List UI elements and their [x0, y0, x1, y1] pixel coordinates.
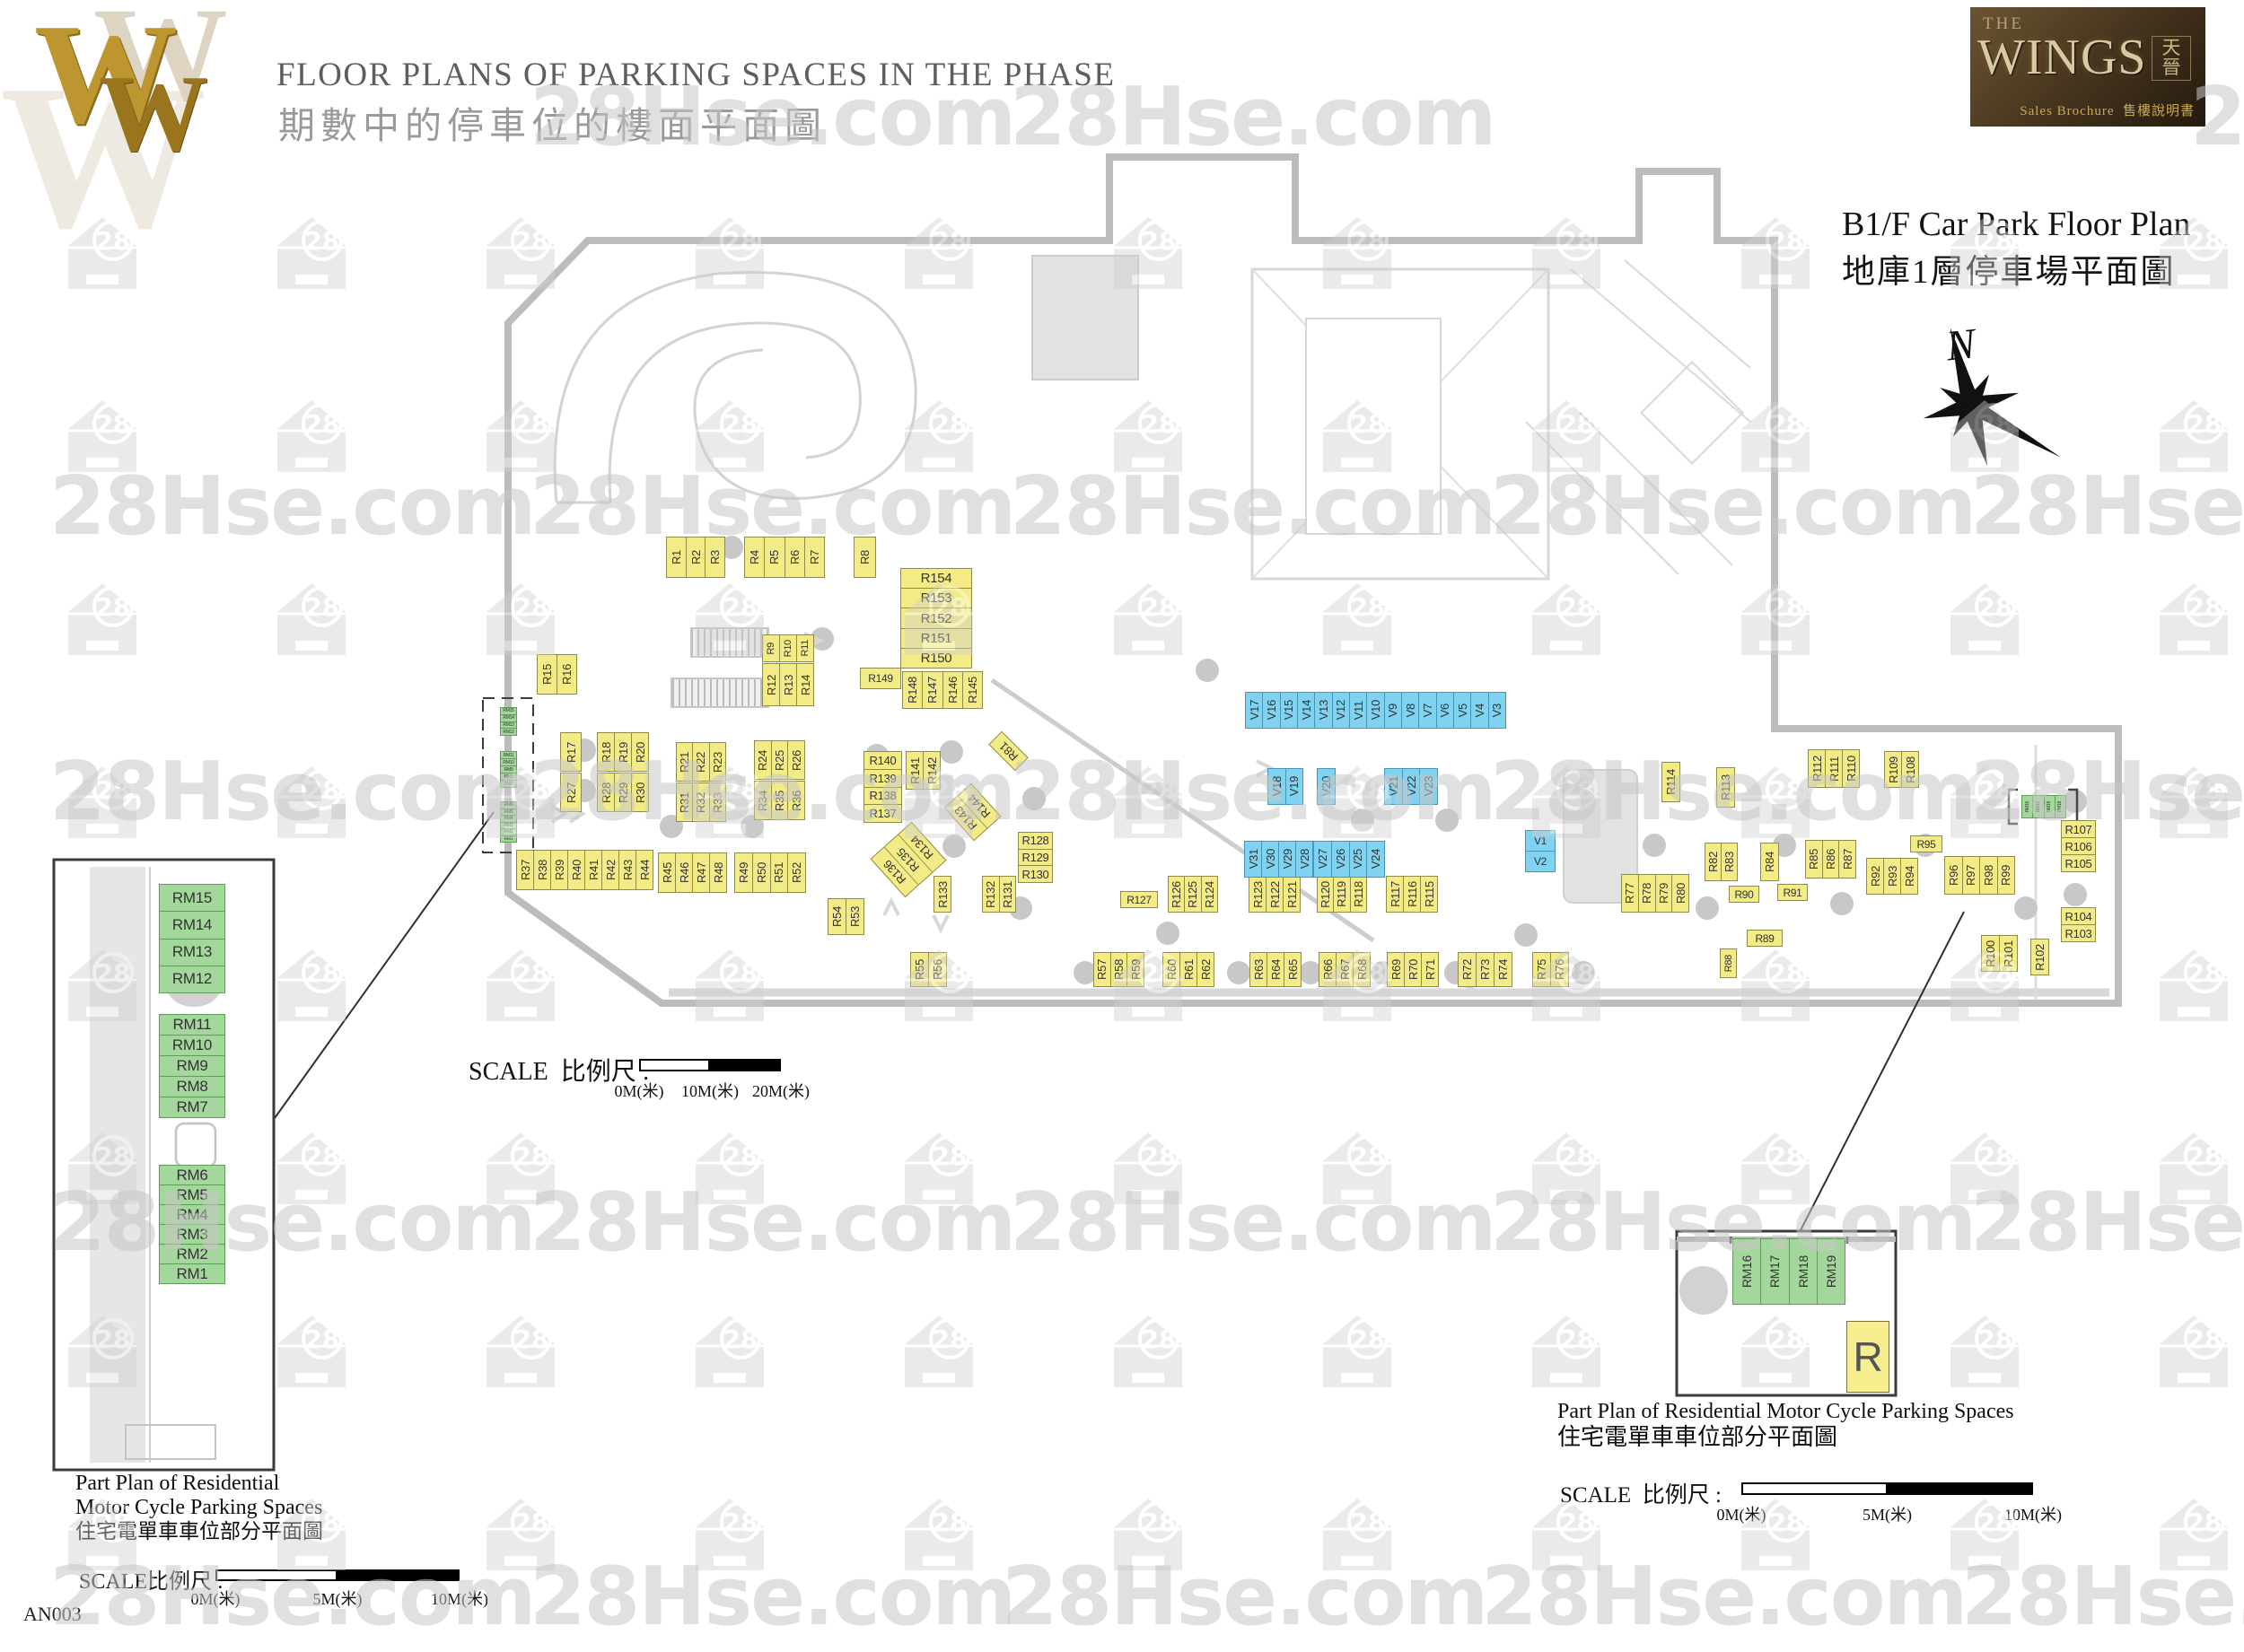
stall-label: R49	[737, 862, 750, 883]
parking-stall-group: R109R108	[1884, 751, 1919, 788]
parking-stall-RM6: RM6	[159, 1165, 225, 1185]
parking-stall-R106: R106	[2061, 838, 2096, 855]
parking-stall-group: R92R93R94	[1866, 858, 1918, 895]
scale-left-bar	[215, 1569, 460, 1581]
stall-label: RM1	[177, 1265, 208, 1283]
stall-label: V4	[1473, 704, 1486, 717]
parking-stall-RM11: RM11	[159, 1014, 225, 1036]
parking-stall-group: R88	[1720, 948, 1737, 978]
parking-stall-RM9: RM9	[500, 766, 517, 774]
stall-label: R59	[1129, 959, 1143, 980]
parking-stall-R131: R131	[1000, 876, 1017, 913]
stall-label: RM13	[503, 722, 513, 728]
parking-stall-R74: R74	[1495, 952, 1512, 987]
stall-label: R90	[1734, 888, 1753, 901]
stall-label: R12	[765, 675, 778, 695]
stall-label: R16	[560, 664, 574, 685]
parking-stall-R153: R153	[900, 589, 972, 608]
parking-stall-group: RM16RM17RM18RM19	[1732, 1238, 1845, 1305]
stall-label: R119	[1335, 881, 1348, 907]
stall-label: R132	[984, 881, 997, 908]
stall-label: R58	[1112, 959, 1126, 980]
parking-stall-R130: R130	[1018, 866, 1053, 883]
stall-label: RM12	[172, 970, 212, 988]
parking-stall-R14: R14	[797, 663, 814, 706]
stall-label: R18	[600, 742, 613, 763]
parking-stall-group: RM6RM5RM4RM3RM2RM1	[500, 801, 517, 843]
parking-stall-R43: R43	[619, 850, 636, 890]
parking-stall-R3: R3	[706, 537, 725, 578]
stall-label: R6	[788, 550, 802, 564]
stall-label: R70	[1407, 959, 1420, 980]
stall-label: R91	[1783, 887, 1801, 899]
stall-label: V23	[1422, 776, 1435, 796]
parking-stall-R149: R149	[860, 668, 901, 689]
parking-stall-R104: R104	[2061, 907, 2096, 925]
scale-left-ticks: 0M(米)5M(米)10M(米)	[215, 1586, 460, 1606]
stall-label: R40	[570, 860, 583, 880]
parking-stall-RM15: RM15	[500, 707, 517, 715]
stall-label: V3	[1490, 704, 1503, 717]
stall-label: V22	[1405, 776, 1418, 796]
stall-label: R20	[634, 742, 647, 763]
parking-stall-group: R49R50R51R52	[734, 852, 806, 893]
parking-stall-RM15: RM15	[159, 884, 225, 912]
parking-stall-RM17: RM17	[1761, 1238, 1789, 1305]
scale-tick: 10M(米)	[681, 1079, 739, 1102]
parking-stall-V11: V11	[1350, 692, 1367, 729]
parking-stall-group: R107R106R105	[2061, 820, 2096, 872]
stall-label: RM15	[172, 889, 212, 907]
parking-stall-R10: R10	[780, 634, 797, 662]
parking-stall-R123: R123	[1249, 876, 1267, 913]
parking-stall-R128: R128	[1018, 832, 1053, 850]
stall-label: R33	[711, 792, 724, 813]
stall-label: R109	[1887, 756, 1900, 783]
stall-label: R45	[661, 862, 674, 883]
stall-label: R146	[946, 677, 960, 704]
stall-label: V11	[1352, 701, 1365, 720]
stall-label: R118	[1352, 881, 1365, 907]
parking-stall-R53: R53	[846, 898, 864, 935]
stall-label: R148	[906, 677, 919, 704]
stall-label: V25	[1351, 849, 1364, 869]
stall-label: RM6	[504, 802, 513, 808]
stall-label: R82	[1706, 852, 1720, 872]
parking-stall-V18: V18	[1267, 768, 1286, 805]
parking-stall-group: R27	[560, 773, 582, 812]
parking-stall-R105: R105	[2061, 855, 2096, 872]
parking-stall-V16: V16	[1263, 692, 1280, 729]
scale-tick: 10M(米)	[431, 1586, 488, 1610]
stall-label: R150	[921, 651, 952, 666]
parking-stall-R24: R24	[754, 740, 772, 780]
stall-label: R107	[2065, 823, 2092, 836]
parking-stall-R84: R84	[1760, 843, 1779, 881]
parking-stall-R63: R63	[1249, 952, 1267, 987]
stall-label: R121	[1285, 881, 1299, 908]
parking-stall-R72: R72	[1458, 952, 1477, 987]
parking-stall-RM1: RM1	[500, 836, 517, 843]
parking-stall-R80: R80	[1672, 874, 1689, 913]
parking-stall-group: R113	[1716, 767, 1735, 808]
stall-label: R153	[921, 590, 952, 606]
stall-label: R53	[848, 906, 862, 927]
parking-stall-group: R149	[860, 668, 901, 689]
stall-label: V6	[1438, 704, 1451, 717]
parking-stall-V6: V6	[1437, 692, 1454, 729]
parking-stall-RM13: RM13	[500, 722, 517, 730]
parking-stall-R116: R116	[1404, 876, 1421, 913]
stall-label: R25	[773, 750, 786, 771]
stall-label: RM11	[173, 1016, 212, 1034]
parking-stall-R48: R48	[710, 852, 727, 893]
stall-label: R36	[790, 791, 803, 811]
stall-label: V10	[1369, 700, 1382, 720]
stall-label: R30	[634, 782, 647, 803]
parking-stall-R150: R150	[900, 649, 972, 669]
parking-stall-R51: R51	[771, 852, 789, 893]
parking-stall-RM16: RM16	[2021, 795, 2033, 818]
parking-stall-group: R60R61R62	[1162, 952, 1214, 987]
stall-label: V19	[1287, 776, 1301, 796]
stall-label: R10	[783, 640, 793, 657]
parking-stall-group: R132R131	[982, 876, 1016, 913]
stall-label: R4	[748, 550, 761, 564]
parking-stall-R85: R85	[1805, 840, 1823, 878]
parking-stall-R61: R61	[1180, 952, 1197, 987]
stall-label: RM16	[1740, 1255, 1754, 1288]
parking-stall-RM4: RM4	[159, 1205, 225, 1225]
stall-label: R98	[1982, 865, 1995, 886]
stall-label: V12	[1334, 700, 1347, 720]
stall-label: RM17	[2036, 801, 2041, 812]
parking-stall-RM8: RM8	[500, 774, 517, 781]
stall-label: R60	[1165, 959, 1179, 980]
parking-stall-R138: R138	[863, 788, 902, 806]
stall-label: R52	[790, 862, 803, 883]
parking-stall-RM12: RM12	[159, 966, 225, 993]
parking-stall-R34: R34	[754, 781, 772, 820]
stall-label: R103	[2065, 927, 2092, 940]
stall-label: R122	[1268, 881, 1282, 908]
stall-label: R75	[1535, 959, 1548, 980]
parking-stall-RM16: RM16	[1732, 1238, 1761, 1305]
parking-stall-R76: R76	[1551, 952, 1569, 987]
stall-label: RM7	[504, 782, 513, 787]
stall-label: R96	[1947, 865, 1960, 886]
stall-label: R79	[1657, 883, 1670, 904]
stall-label: RM15	[503, 708, 513, 713]
parking-stall-V31: V31	[1244, 841, 1262, 878]
parking-stall-R129: R129	[1018, 850, 1053, 867]
stall-label: V14	[1300, 700, 1313, 720]
scale-right-bar	[1741, 1482, 2033, 1495]
stall-label: R81	[996, 739, 1021, 764]
stall-label: R84	[1763, 852, 1776, 872]
stall-label: V30	[1264, 849, 1277, 869]
parking-stall-R67: R67	[1337, 952, 1354, 987]
stall-label: R78	[1640, 883, 1653, 904]
stall-label: V17	[1248, 700, 1261, 720]
parking-stall-R70: R70	[1405, 952, 1422, 987]
parking-stall-RM19: RM19	[2056, 795, 2066, 818]
parking-stall-V21: V21	[1384, 768, 1403, 805]
parking-stall-R96: R96	[1944, 856, 1963, 895]
stall-label: RM2	[177, 1246, 208, 1263]
stall-label: RM7	[177, 1098, 208, 1116]
stall-label: V16	[1265, 700, 1278, 720]
stall-label: R112	[1810, 756, 1824, 782]
stall-label: R147	[925, 677, 939, 704]
stall-label: R37	[519, 860, 532, 880]
parking-stall-group: R141R142	[906, 751, 941, 790]
parking-stall-group: R114	[1661, 762, 1680, 802]
stall-label: RM18	[1796, 1255, 1810, 1288]
parking-stall-group: R117R116R115	[1386, 876, 1438, 913]
parking-stall-group: R100R101	[1981, 935, 2018, 972]
parking-stall-group: R72R73R74	[1458, 952, 1512, 987]
parking-stall-R66: R66	[1319, 952, 1337, 987]
stall-label: RM19	[2057, 801, 2063, 812]
parking-stall-R94: R94	[1901, 858, 1918, 895]
parking-stall-R9: R9	[762, 634, 780, 662]
stall-label: V20	[1319, 776, 1333, 796]
parking-stall-R103: R103	[2061, 925, 2096, 942]
parking-stall-R97: R97	[1963, 856, 1981, 895]
stall-label: V29	[1281, 849, 1294, 869]
stall-label: R19	[617, 742, 630, 763]
stall-label: R117	[1389, 881, 1402, 907]
parking-stall-group: RM11RM10RM9RM8RM7	[159, 1014, 225, 1118]
parking-stall-RM7: RM7	[500, 781, 517, 788]
parking-stall-R139: R139	[863, 770, 902, 788]
stall-label: RM2	[504, 829, 513, 835]
scale-main-bar	[639, 1059, 781, 1071]
stall-label: R80	[1674, 883, 1687, 904]
stall-label: V13	[1317, 700, 1330, 720]
stall-label: R56	[931, 959, 944, 980]
parking-stall-R119: R119	[1334, 876, 1350, 913]
parking-stall-R39: R39	[551, 850, 568, 890]
parking-stall-group: R21R22R23	[676, 742, 726, 782]
parking-stall-R47: R47	[693, 852, 710, 893]
stall-label: R129	[1022, 851, 1049, 864]
stall-label: R63	[1252, 959, 1266, 980]
parking-stall-R148: R148	[902, 671, 923, 709]
stall-label: R133	[936, 881, 950, 908]
parking-stall-R110: R110	[1843, 749, 1860, 788]
stall-label: R130	[1022, 868, 1049, 881]
parking-stall-R13: R13	[780, 663, 797, 706]
parking-stall-group: R18R19R20	[597, 732, 649, 772]
stall-label: R29	[617, 782, 630, 803]
stall-label: V15	[1282, 700, 1295, 720]
parking-stall-RM6: RM6	[500, 801, 517, 809]
parking-stall-group: R112R111R110	[1808, 749, 1860, 788]
parking-stall-V29: V29	[1279, 841, 1296, 878]
parking-stall-R23: R23	[710, 742, 726, 782]
parking-stall-R111: R111	[1826, 749, 1843, 788]
parking-stall-V27: V27	[1313, 841, 1332, 878]
parking-stall-group: R75R76	[1532, 952, 1569, 987]
parking-stall-group: RM15RM14RM13RM12	[500, 707, 517, 736]
parking-stall-group: R15R16	[537, 654, 577, 695]
stall-label: R105	[2065, 857, 2092, 870]
parking-stall-V17: V17	[1245, 692, 1263, 729]
stall-label: R76	[1553, 959, 1566, 980]
parking-stall-R90: R90	[1729, 886, 1759, 903]
parking-stall-group: V27V26V25V24	[1313, 841, 1385, 878]
parking-stall-R154: R154	[900, 568, 972, 589]
parking-stall-group: R127	[1120, 891, 1158, 908]
stall-label: R92	[1869, 866, 1882, 887]
parking-stall-group: V1V2	[1525, 830, 1556, 872]
parking-stall-group: R128R129R130	[1018, 832, 1053, 883]
parking-stall-R58: R58	[1111, 952, 1128, 987]
stall-label: R38	[536, 860, 549, 880]
parking-stall-R25: R25	[772, 740, 789, 780]
parking-stall-R142: R142	[924, 751, 941, 790]
scale-tick: 0M(米)	[615, 1079, 664, 1102]
parking-stall-R35: R35	[772, 781, 789, 820]
parking-stall-R37: R37	[516, 850, 534, 890]
parking-stall-R15: R15	[537, 654, 557, 695]
stall-label: RM17	[1767, 1255, 1782, 1288]
stall-label: R85	[1807, 849, 1820, 870]
parking-stall-RM14: RM14	[159, 912, 225, 939]
stall-label: R11	[800, 640, 811, 656]
parking-stall-R77: R77	[1621, 874, 1639, 913]
parking-stall-group: R102	[2030, 939, 2049, 975]
parking-stall-R41: R41	[585, 850, 602, 890]
scale-main-ticks: 0M(米)10M(米)20M(米)	[639, 1079, 781, 1098]
stall-label: R2	[689, 550, 703, 564]
parking-stall-RM11: RM11	[500, 751, 517, 759]
stall-label: RM5	[177, 1186, 208, 1204]
parking-stall-R2: R2	[687, 537, 706, 578]
stall-label: R101	[2002, 940, 2015, 967]
stall-label: R139	[870, 772, 897, 785]
parking-stall-group: R143R144	[944, 783, 1002, 842]
stall-label: RM14	[172, 916, 212, 934]
parking-stall-R93: R93	[1884, 858, 1901, 895]
stall-label: R26	[790, 750, 803, 771]
stall-label: R88	[1723, 955, 1734, 972]
parking-stall-R102: R102	[2030, 939, 2049, 975]
stall-label: R28	[600, 782, 613, 803]
parking-stall-V7: V7	[1419, 692, 1436, 729]
stall-label: R34	[756, 791, 769, 811]
stall-label: R137	[870, 807, 897, 820]
parking-stall-group: R57R58R59	[1093, 952, 1144, 987]
stall-label: RM18	[2047, 801, 2052, 812]
parking-stall-V23: V23	[1420, 768, 1438, 805]
parking-stall-group: R84	[1760, 843, 1779, 881]
stall-label: R32	[694, 792, 707, 813]
parking-stall-group: R31R32R33	[676, 782, 726, 822]
scale-tick: 0M(米)	[1717, 1502, 1766, 1525]
parking-stall-V26: V26	[1332, 841, 1350, 878]
parking-stall-R20: R20	[632, 732, 649, 772]
stall-label: V7	[1421, 704, 1434, 717]
scale-tick: 10M(米)	[2004, 1502, 2062, 1525]
stall-label: R77	[1623, 883, 1636, 904]
parking-stall-RM5: RM5	[500, 809, 517, 817]
stall-label: R9	[766, 642, 776, 654]
parking-stall-R52: R52	[788, 852, 806, 893]
parking-stall-V3: V3	[1489, 692, 1506, 729]
scale-tick: 0M(米)	[191, 1586, 241, 1610]
parking-stall-R127: R127	[1120, 891, 1158, 908]
stall-label: RM9	[177, 1057, 208, 1075]
stall-label: R113	[1719, 774, 1732, 800]
parking-stall-RM3: RM3	[159, 1225, 225, 1245]
parking-stall-R26: R26	[788, 740, 805, 780]
parking-stall-R62: R62	[1197, 952, 1214, 987]
parking-stall-group: R17	[560, 732, 582, 772]
parking-stall-R16: R16	[557, 654, 577, 695]
stall-label: V9	[1386, 704, 1399, 717]
parking-stall-V1: V1	[1525, 830, 1556, 852]
parking-stall-R71: R71	[1422, 952, 1439, 987]
stall-label: R24	[756, 750, 769, 771]
parking-stall-R132: R132	[982, 876, 1000, 913]
parking-stall-R27: R27	[560, 773, 582, 812]
parking-stall-V30: V30	[1262, 841, 1279, 878]
parking-stall-group: R34R35R36	[754, 781, 805, 820]
parking-stall-group: R95	[1910, 835, 1942, 852]
stall-label: RM14	[503, 715, 513, 721]
stall-label: R120	[1319, 881, 1332, 908]
stall-label: R5	[767, 550, 781, 564]
parking-stall-group: R45R46R47R48	[658, 852, 727, 893]
stall-label: R123	[1251, 881, 1265, 908]
stall-label: R73	[1478, 959, 1492, 980]
stall-label: R66	[1321, 959, 1335, 980]
parking-stall-R45: R45	[658, 852, 676, 893]
parking-stall-V25: V25	[1350, 841, 1368, 878]
parking-stall-R141: R141	[906, 751, 924, 790]
stall-label: R72	[1460, 959, 1474, 980]
parking-stall-R19: R19	[615, 732, 632, 772]
parking-stall-RM8: RM8	[159, 1077, 225, 1097]
parking-stall-R44: R44	[636, 850, 653, 890]
stall-label: R23	[711, 752, 724, 773]
parking-stall-R57: R57	[1093, 952, 1111, 987]
parking-stall-R33: R33	[710, 782, 726, 822]
stall-label: R126	[1170, 881, 1183, 908]
stall-label: R64	[1269, 959, 1283, 980]
parking-stall-R113: R113	[1716, 767, 1735, 808]
stall-label: R151	[921, 631, 952, 646]
stall-label: R102	[2033, 944, 2047, 971]
parking-stall-R92: R92	[1866, 858, 1884, 895]
parking-stall-V19: V19	[1286, 768, 1304, 805]
part-plan-right-caption: Part Plan of Residential Motor Cycle Par…	[1557, 1400, 2014, 1450]
parking-stall-group: R85R86R87	[1805, 840, 1856, 878]
stall-label: R51	[772, 862, 785, 883]
parking-stall-R91: R91	[1777, 884, 1808, 901]
stall-label: V1	[1534, 835, 1547, 847]
parking-stall-V24: V24	[1367, 841, 1385, 878]
parking-stall-group: R28R29R30	[597, 773, 649, 812]
stall-label: RM8	[177, 1078, 208, 1096]
stall-label: RM4	[504, 816, 513, 821]
stall-label: R42	[604, 860, 618, 880]
parking-stall-R8: R8	[854, 537, 876, 578]
parking-stall-V4: V4	[1471, 692, 1488, 729]
